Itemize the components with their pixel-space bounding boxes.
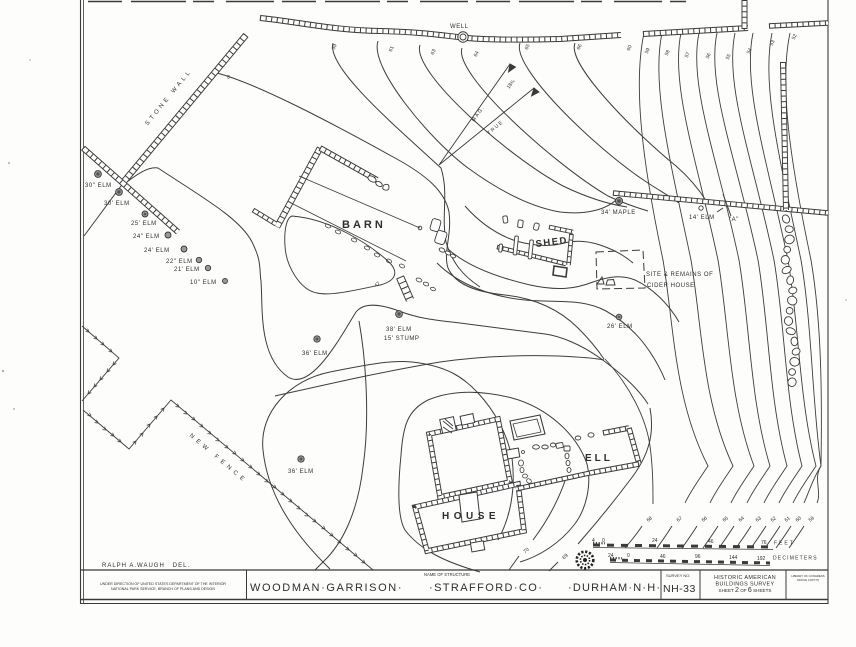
svg-text:66: 66 [701,515,709,523]
svg-text:"A": "A" [729,217,739,223]
svg-text:62: 62 [770,515,778,523]
svg-text:96: 96 [695,554,701,560]
svg-text:NH-33: NH-33 [663,583,696,595]
svg-text:SHED: SHED [535,235,569,250]
svg-text:15' STUMP: 15' STUMP [384,336,419,342]
svg-text:·DURHAM·N·H·: ·DURHAM·N·H· [568,582,661,594]
svg-text:FEET: FEET [774,541,795,547]
svg-text:BARN: BARN [342,219,386,231]
svg-text:64: 64 [738,515,746,523]
svg-text:DECIMETERS: DECIMETERS [773,556,818,562]
svg-text:24" ELM: 24" ELM [133,234,160,240]
svg-text:59: 59 [331,43,339,51]
svg-text:MAG.: MAG. [471,104,487,123]
svg-text:SITE & REMAINS OF: SITE & REMAINS OF [646,272,713,278]
svg-text:NAME OF STRUCTURE: NAME OF STRUCTURE [424,572,470,577]
svg-text:46: 46 [660,554,666,560]
svg-text:34' MAPLE: 34' MAPLE [601,210,636,216]
svg-text:192: 192 [757,556,766,562]
svg-text:58: 58 [664,49,672,57]
svg-text:10" ELM: 10" ELM [190,280,217,286]
svg-text:24' ELM: 24' ELM [144,248,170,254]
svg-text:66: 66 [576,43,584,51]
svg-text:14' ELM: 14' ELM [689,215,715,221]
svg-text:56: 56 [705,52,713,60]
svg-text:76: 76 [761,540,767,546]
svg-text:·STRAFFORD·CO·: ·STRAFFORD·CO· [429,582,543,594]
svg-text:30" ELM: 30" ELM [85,183,112,189]
svg-text:STONE WALL: STONE WALL [145,68,194,126]
svg-text:SHEET 2 OF 6 SHEETS: SHEET 2 OF 6 SHEETS [719,587,772,594]
svg-text:RALPH A.WAUGH DEL.: RALPH A.WAUGH DEL. [102,563,190,569]
svg-text:52: 52 [791,33,799,41]
svg-text:65: 65 [524,43,532,51]
svg-text:0: 0 [627,553,630,559]
svg-text:64: 64 [473,50,481,58]
svg-text:TRUE: TRUE [486,119,505,136]
svg-text:65: 65 [722,515,730,523]
svg-text:OFFICE COPY(?): OFFICE COPY(?) [797,578,819,582]
svg-text:22" ELM: 22" ELM [166,259,193,265]
svg-text:55: 55 [725,53,733,61]
svg-text:60: 60 [626,44,634,52]
svg-text:24: 24 [652,538,658,544]
svg-text:26' ELM: 26' ELM [607,324,633,330]
svg-text:SURVEY NO.: SURVEY NO. [666,573,691,578]
svg-text:57: 57 [684,51,692,59]
svg-text:ELL: ELL [585,453,613,464]
svg-text:5: 5 [226,74,230,81]
svg-text:68: 68 [646,515,654,523]
svg-text:BUILDINGS SURVEY: BUILDINGS SURVEY [715,582,774,588]
svg-text:63: 63 [430,48,438,56]
svg-text:36' ELM: 36' ELM [302,351,328,357]
svg-text:53: 53 [769,39,777,47]
svg-text:69: 69 [561,553,569,561]
svg-text:61: 61 [388,45,396,53]
svg-text:WELL: WELL [450,24,469,30]
svg-text:70: 70 [522,547,530,555]
svg-text:67: 67 [676,515,684,523]
svg-text:18¾: 18¾ [506,78,517,90]
svg-text:HOUSE: HOUSE [442,511,500,522]
svg-text:HISTORIC AMERICAN: HISTORIC AMERICAN [714,575,776,581]
svg-text:54: 54 [746,47,754,55]
svg-text:60: 60 [795,515,803,523]
svg-text:38' ELM: 38' ELM [386,327,412,333]
svg-text:59: 59 [644,47,652,55]
svg-text:CIDER HOUSE: CIDER HOUSE [647,283,695,289]
svg-text:46: 46 [708,539,714,545]
svg-text:25' ELM: 25' ELM [131,221,157,227]
svg-text:61: 61 [784,515,792,523]
svg-text:63: 63 [755,515,763,523]
svg-text:UNDER DIRECTION OF UNITED STAT: UNDER DIRECTION OF UNITED STATES DEPARTM… [100,582,226,586]
svg-text:30' ELM: 30' ELM [104,201,130,207]
svg-text:WOODMAN·GARRISON·: WOODMAN·GARRISON· [250,582,403,594]
svg-text:59: 59 [808,515,816,523]
svg-text:144: 144 [729,555,738,561]
svg-text:NATIONAL PARK SERVICE, BRANCH: NATIONAL PARK SERVICE, BRANCH OF PLANS A… [111,587,215,591]
svg-text:36' ELM: 36' ELM [288,469,314,475]
svg-text:21' ELM: 21' ELM [174,267,200,273]
